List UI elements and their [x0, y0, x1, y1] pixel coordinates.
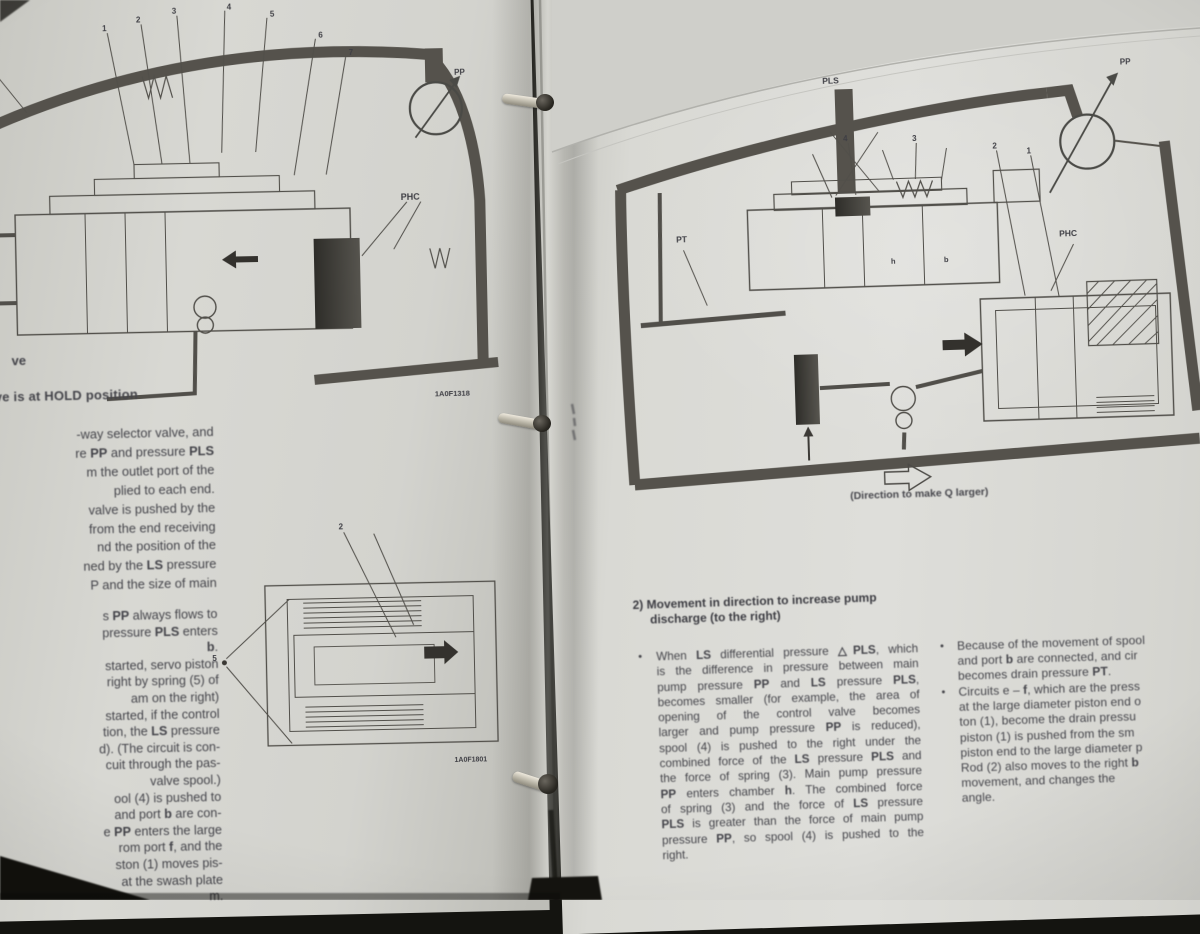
background-corner-top-left [0, 0, 30, 22]
background-bottom-edge [0, 893, 560, 900]
binder-ring-hole-top [536, 94, 554, 111]
binder-ring-hole-bottom [538, 774, 558, 794]
photo-overlay [0, 0, 1200, 900]
binder-ring-hole-middle [533, 415, 551, 432]
spine-illegible-marking [572, 404, 575, 440]
photo-of-open-service-manual: { "bold_tokens": ["△PLS","PLS","PP","PT"… [0, 0, 1200, 900]
page-stack-edge-area [552, 0, 1200, 152]
